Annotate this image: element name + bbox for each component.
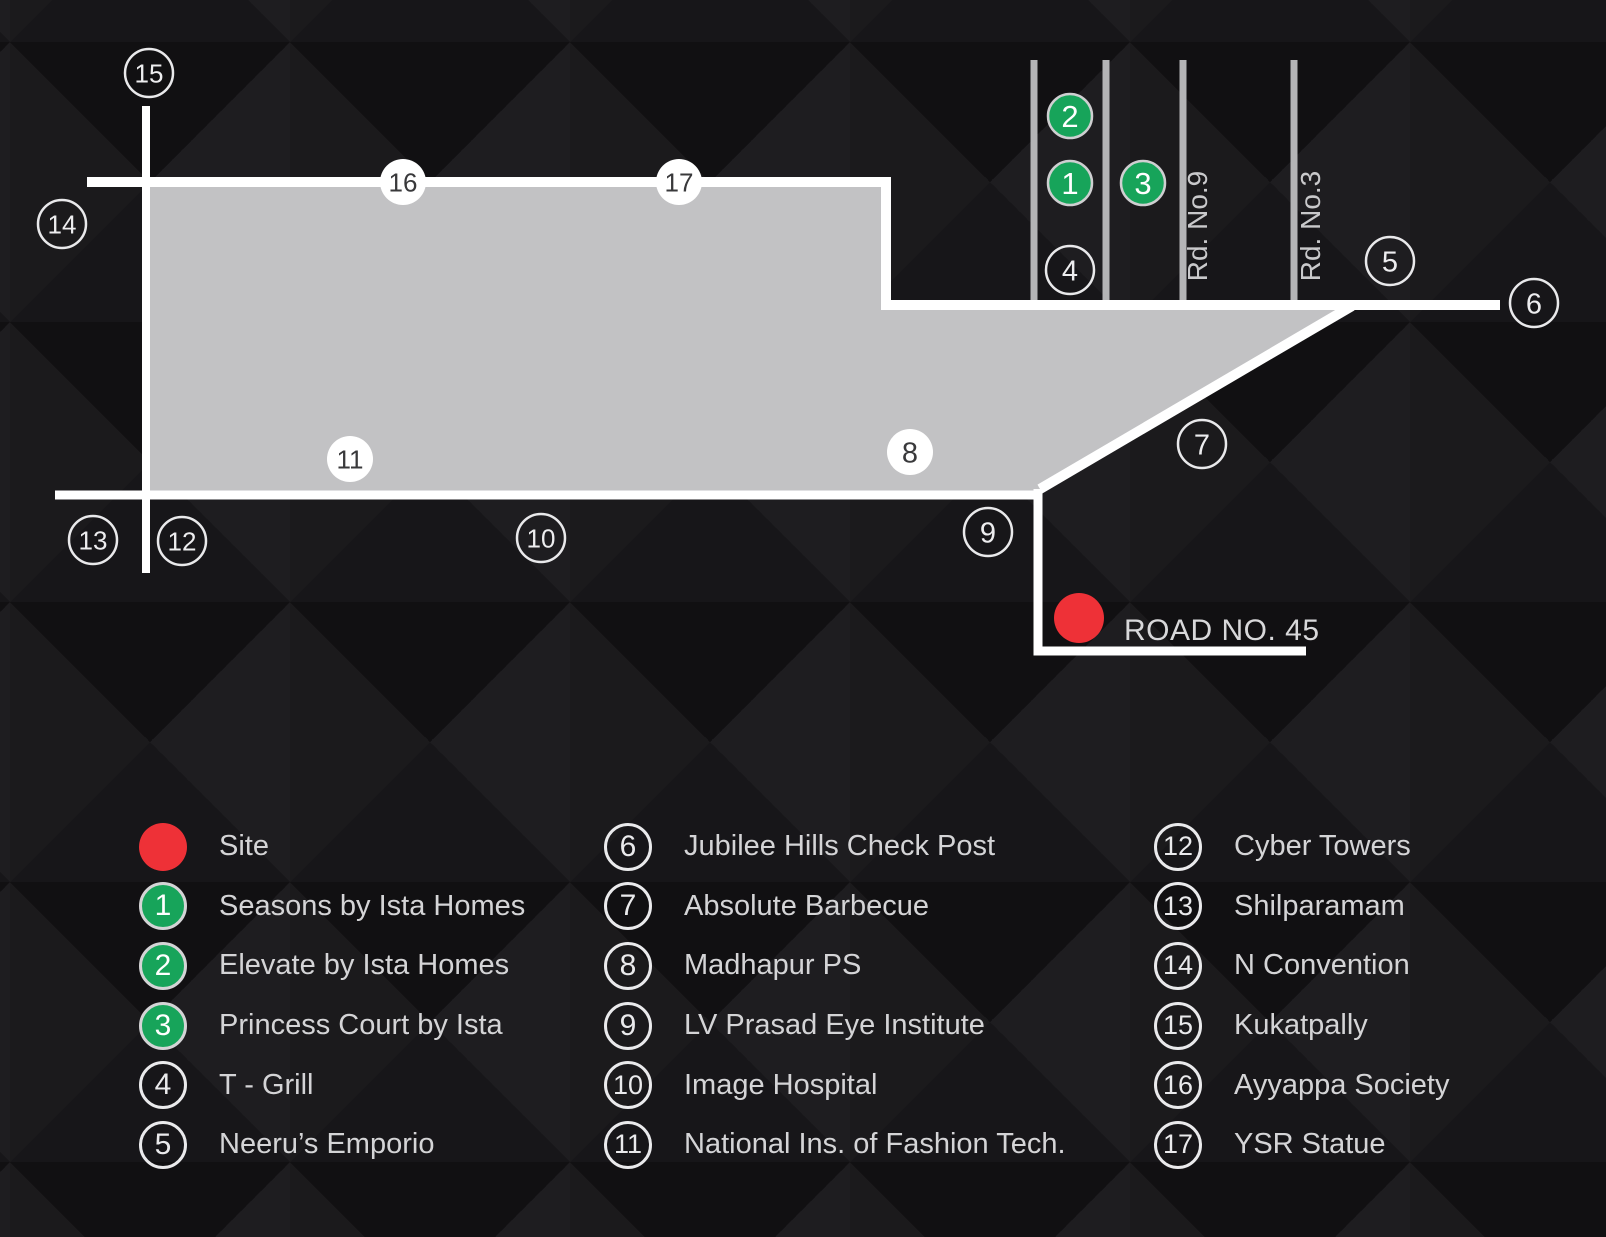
legend-label: Absolute Barbecue — [684, 890, 929, 923]
marker-number: 4 — [1062, 255, 1078, 287]
marker-number: 9 — [980, 517, 996, 549]
rd-no-3-label: Rd. No.3 — [1295, 171, 1326, 282]
legend-marker-number: 2 — [155, 951, 172, 981]
legend-site-marker — [139, 823, 187, 871]
marker-number: 16 — [389, 167, 418, 197]
legend-marker-number: 1 — [155, 891, 172, 921]
legend-label: Image Hospital — [684, 1069, 877, 1102]
legend-item-12: 12Cyber Towers — [1154, 817, 1450, 877]
legend-marker-number: 11 — [614, 1131, 642, 1158]
legend-label: YSR Statue — [1234, 1128, 1386, 1161]
legend-marker-12: 12 — [1154, 823, 1202, 871]
marker-number: 3 — [1134, 166, 1151, 201]
legend-marker-number: 9 — [620, 1011, 637, 1041]
legend-marker-17: 17 — [1154, 1121, 1202, 1169]
legend-marker-number: 5 — [155, 1130, 172, 1160]
legend-marker-7: 7 — [604, 882, 652, 930]
legend-marker-16: 16 — [1154, 1061, 1202, 1109]
legend-column-3: 12Cyber Towers13Shilparamam14N Conventio… — [1154, 817, 1450, 1175]
legend-label: Shilparamam — [1234, 890, 1405, 923]
marker-number: 15 — [135, 58, 164, 88]
marker-number: 13 — [79, 525, 108, 555]
map-marker-12: 12 — [158, 517, 206, 565]
legend-item-1: 1Seasons by Ista Homes — [139, 877, 525, 937]
legend-marker-15: 15 — [1154, 1002, 1202, 1050]
map-marker-13: 13 — [69, 516, 117, 564]
map-marker-10: 10 — [517, 514, 565, 562]
map-marker-16: 16 — [380, 159, 426, 205]
legend-label: Neeru’s Emporio — [219, 1128, 434, 1161]
legend-marker-8: 8 — [604, 942, 652, 990]
legend-item-3: 3Princess Court by Ista — [139, 996, 525, 1056]
marker-number: 8 — [902, 437, 918, 469]
road-no-45-label: ROAD NO. 45 — [1124, 614, 1320, 647]
legend-label: T - Grill — [219, 1069, 314, 1102]
legend-label: Elevate by Ista Homes — [219, 949, 509, 982]
map-marker-15: 15 — [125, 49, 173, 97]
legend-marker-number: 6 — [620, 832, 637, 862]
marker-number: 6 — [1526, 288, 1542, 320]
legend-label: Princess Court by Ista — [219, 1009, 503, 1042]
legend-column-1: Site1Seasons by Ista Homes2Elevate by Is… — [139, 817, 525, 1175]
legend-marker-number: 14 — [1163, 952, 1193, 979]
map-marker-5: 5 — [1366, 237, 1414, 285]
legend-item-site: Site — [139, 817, 525, 877]
map-marker-7: 7 — [1178, 420, 1226, 468]
legend-item-10: 10Image Hospital — [604, 1055, 1066, 1115]
legend-item-8: 8Madhapur PS — [604, 936, 1066, 996]
legend-marker-number: 16 — [1163, 1072, 1193, 1099]
legend-label: Madhapur PS — [684, 949, 861, 982]
marker-number: 10 — [527, 523, 556, 553]
map-marker-4: 4 — [1046, 246, 1094, 294]
legend-marker-number: 4 — [155, 1070, 172, 1100]
legend-column-2: 6Jubilee Hills Check Post7Absolute Barbe… — [604, 817, 1066, 1175]
site-marker — [1054, 593, 1104, 643]
legend-marker-1: 1 — [139, 882, 187, 930]
legend-marker-number: 3 — [155, 1011, 172, 1041]
map-land-area — [150, 187, 1352, 491]
legend-marker-5: 5 — [139, 1121, 187, 1169]
legend-marker-11: 11 — [604, 1121, 652, 1169]
legend-item-14: 14N Convention — [1154, 936, 1450, 996]
legend-item-16: 16Ayyappa Society — [1154, 1055, 1450, 1115]
map-marker-9: 9 — [964, 508, 1012, 556]
map-marker-2: 2 — [1048, 94, 1092, 138]
legend-marker-14: 14 — [1154, 942, 1202, 990]
legend-marker-3: 3 — [139, 1002, 187, 1050]
legend-label: Jubilee Hills Check Post — [684, 830, 995, 863]
map-marker-11: 11 — [327, 436, 373, 482]
legend-label: Kukatpally — [1234, 1009, 1368, 1042]
legend-label: LV Prasad Eye Institute — [684, 1009, 985, 1042]
legend-label: Ayyappa Society — [1234, 1069, 1450, 1102]
legend-label: Seasons by Ista Homes — [219, 890, 525, 923]
legend-item-4: 4T - Grill — [139, 1055, 525, 1115]
legend-item-5: 5Neeru’s Emporio — [139, 1115, 525, 1175]
rd-no-9-label: Rd. No.9 — [1182, 171, 1213, 282]
site-dot — [1054, 593, 1104, 643]
legend-item-15: 15Kukatpally — [1154, 996, 1450, 1056]
marker-number: 12 — [168, 526, 197, 556]
marker-number: 1 — [1061, 166, 1078, 201]
legend-item-2: 2Elevate by Ista Homes — [139, 936, 525, 996]
legend-label: Site — [219, 830, 269, 863]
legend-marker-10: 10 — [604, 1061, 652, 1109]
legend-item-9: 9LV Prasad Eye Institute — [604, 996, 1066, 1056]
map-marker-6: 6 — [1510, 279, 1558, 327]
legend-marker-number: 15 — [1163, 1012, 1193, 1039]
legend-marker-number: 13 — [1163, 893, 1193, 920]
legend-marker-9: 9 — [604, 1002, 652, 1050]
legend-label: Cyber Towers — [1234, 830, 1411, 863]
marker-number: 7 — [1194, 429, 1210, 461]
map-marker-14: 14 — [38, 200, 86, 248]
legend-marker-4: 4 — [139, 1061, 187, 1109]
legend-marker-2: 2 — [139, 942, 187, 990]
map-marker-1: 1 — [1048, 161, 1092, 205]
marker-number: 14 — [48, 209, 77, 239]
legend-item-17: 17YSR Statue — [1154, 1115, 1450, 1175]
legend-label: National Ins. of Fashion Tech. — [684, 1128, 1066, 1161]
legend-label: N Convention — [1234, 949, 1410, 982]
marker-number: 2 — [1061, 99, 1078, 134]
legend-marker-13: 13 — [1154, 882, 1202, 930]
legend-item-7: 7Absolute Barbecue — [604, 877, 1066, 937]
map-marker-17: 17 — [656, 159, 702, 205]
legend-marker-number: 12 — [1163, 833, 1193, 860]
site-map-page: { "map": { "road45_label": "ROAD NO. 45"… — [0, 0, 1606, 1237]
legend-marker-6: 6 — [604, 823, 652, 871]
marker-number: 11 — [337, 444, 364, 474]
legend-item-11: 11National Ins. of Fashion Tech. — [604, 1115, 1066, 1175]
site-map: Rd. No.9 Rd. No.3 ROAD NO. 45 1514161713… — [0, 0, 1606, 720]
legend-marker-number: 10 — [613, 1072, 643, 1099]
map-marker-8: 8 — [887, 429, 933, 475]
marker-number: 17 — [665, 167, 694, 197]
map-marker-3: 3 — [1121, 161, 1165, 205]
marker-number: 5 — [1382, 246, 1398, 278]
legend-item-13: 13Shilparamam — [1154, 877, 1450, 937]
legend-marker-number: 8 — [620, 951, 637, 981]
legend-marker-number: 17 — [1163, 1131, 1193, 1158]
legend-item-6: 6Jubilee Hills Check Post — [604, 817, 1066, 877]
legend-marker-number: 7 — [620, 891, 637, 921]
